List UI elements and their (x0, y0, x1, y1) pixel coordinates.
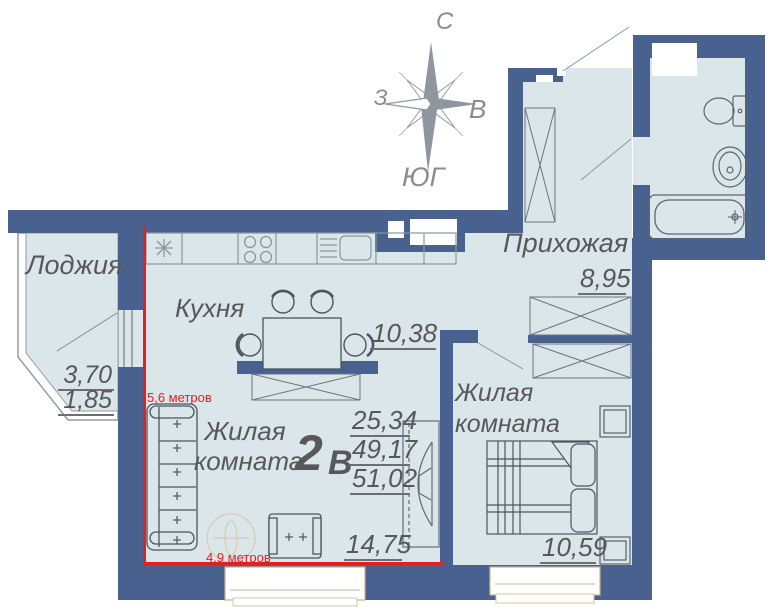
bedroom-area: 10,59 (540, 534, 596, 564)
compass-west-label: З (374, 85, 388, 111)
unit-type-letter: В (328, 446, 353, 480)
compass-rose-icon (385, 42, 477, 172)
total-area: 51,02 (350, 465, 410, 495)
bedroom-wardrobe (533, 344, 631, 378)
unit-type-number: 2 (295, 428, 323, 478)
compass-north-label: С (436, 8, 453, 36)
hallway-low-wardrobe (530, 297, 631, 335)
living-room-window (225, 567, 365, 606)
lamp-symbol-icon (155, 239, 173, 257)
loggia-label: Лоджия (26, 251, 122, 279)
living-room-label: Жилая комната (194, 416, 296, 476)
hallway-area: 8,95 (578, 265, 626, 295)
armchair (269, 514, 321, 558)
sofa (147, 404, 197, 550)
living-room-area: 14,75 (344, 531, 402, 561)
vertical-measure-label: 5,6 метров (147, 390, 212, 405)
kitchen-label: Кухня (175, 295, 244, 322)
area-without-loggia: 49,17 (350, 436, 410, 466)
dining-table (263, 318, 341, 369)
compass-south-label: ЮГ (402, 162, 444, 193)
hallway-tall-wardrobe (525, 108, 555, 222)
floor-plan: Лоджия 3,70 1,85 Кухня 10,38 Прихожая 8,… (0, 0, 770, 607)
living-area-total: 25,34 (350, 407, 410, 437)
bed (487, 441, 597, 534)
hallway-label: Прихожая (503, 229, 628, 257)
horizontal-measure-label: 4,9 метров (206, 550, 271, 565)
bedroom-label: Жилая комната (455, 378, 559, 440)
compass-east-label: В (469, 94, 486, 125)
loggia-area-half: 1,85 (58, 387, 114, 416)
kitchen-area: 10,38 (370, 320, 436, 350)
bedroom-window (490, 567, 600, 603)
island-cabinet (252, 374, 360, 400)
